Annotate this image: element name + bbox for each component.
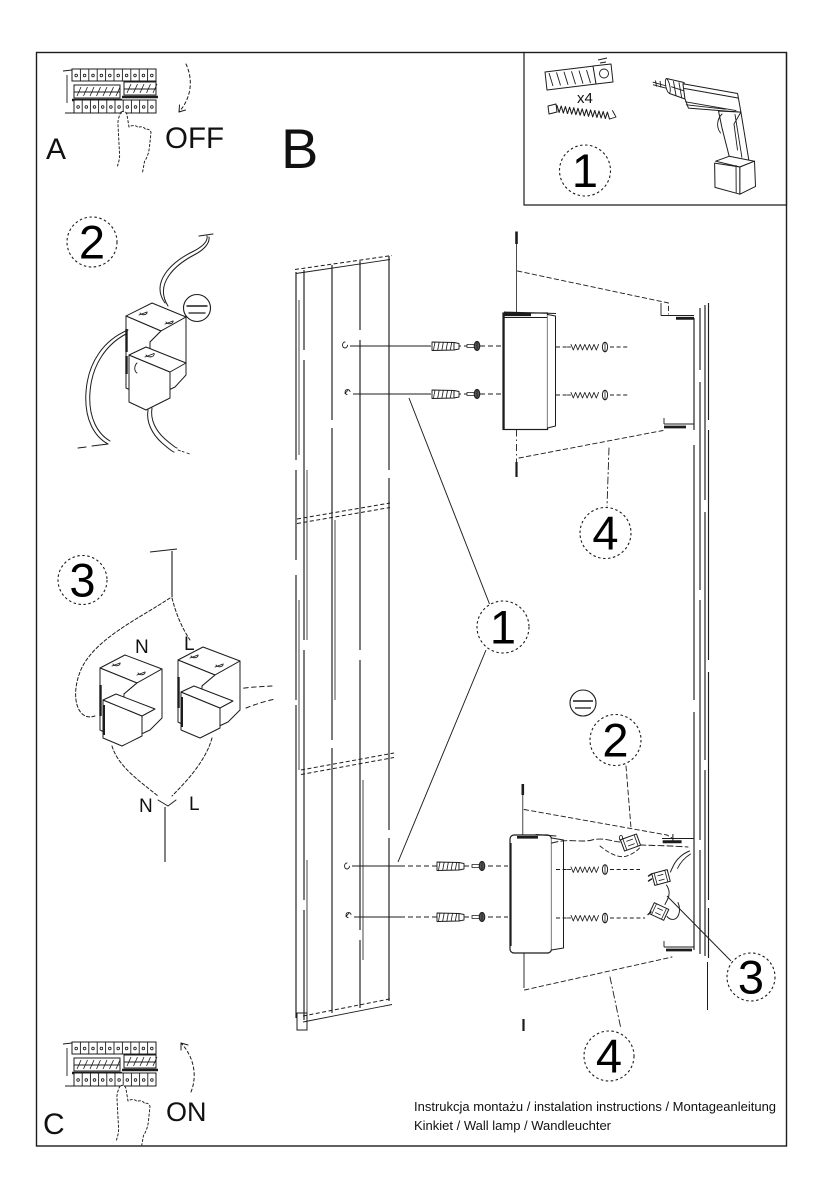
svg-text:2: 2 xyxy=(79,216,105,269)
svg-text:1: 1 xyxy=(490,601,516,654)
svg-text:C: C xyxy=(43,1108,65,1141)
svg-text:Kinkiet / Wall lamp / Wandleuc: Kinkiet / Wall lamp / Wandleuchter xyxy=(414,1118,612,1133)
svg-text:N: N xyxy=(135,637,149,658)
svg-text:N: N xyxy=(139,796,153,817)
svg-text:L: L xyxy=(189,794,200,815)
svg-text:Instrukcja montażu / instalati: Instrukcja montażu / instalation instruc… xyxy=(414,1099,776,1114)
svg-text:OFF: OFF xyxy=(165,122,224,155)
svg-text:3: 3 xyxy=(738,951,764,1004)
svg-text:L: L xyxy=(184,634,195,655)
svg-text:x4: x4 xyxy=(577,90,593,107)
svg-text:ON: ON xyxy=(166,1097,207,1127)
svg-text:A: A xyxy=(46,133,66,166)
svg-text:1: 1 xyxy=(572,144,598,197)
svg-text:4: 4 xyxy=(592,507,618,560)
svg-text:3: 3 xyxy=(69,554,95,607)
svg-text:B: B xyxy=(281,117,318,180)
svg-text:4: 4 xyxy=(596,1030,622,1083)
svg-text:2: 2 xyxy=(602,714,628,767)
